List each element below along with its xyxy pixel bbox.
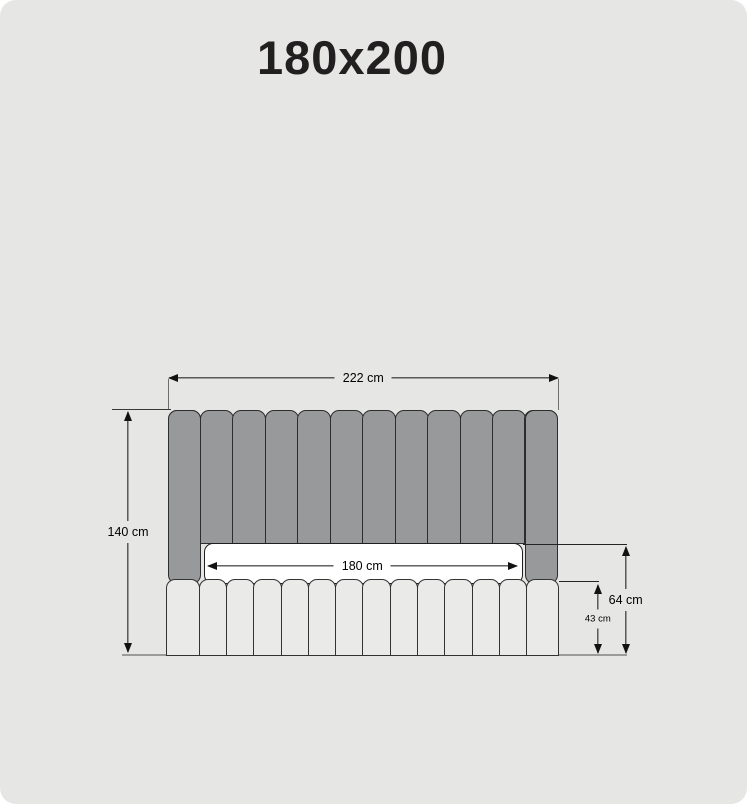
base-slat bbox=[417, 579, 446, 656]
dimension-label: 180 cm bbox=[334, 559, 391, 573]
dimension-height-total: 140 cm bbox=[123, 411, 133, 653]
arrowhead-down-icon bbox=[124, 643, 132, 653]
arrowhead-right-icon bbox=[508, 562, 518, 570]
arrowhead-up-icon bbox=[622, 546, 630, 556]
headboard-slat bbox=[492, 410, 526, 545]
base-slat bbox=[499, 579, 528, 656]
headboard-slat bbox=[232, 410, 266, 545]
arrowhead-right-icon bbox=[549, 374, 559, 382]
arrowhead-down-icon bbox=[594, 644, 602, 654]
headboard-slat bbox=[265, 410, 299, 545]
extension-line-width-right bbox=[558, 379, 559, 410]
base-slat bbox=[199, 579, 228, 656]
dimension-label: 43 cm bbox=[583, 609, 613, 628]
dimension-label: 222 cm bbox=[335, 371, 392, 385]
dimension-width-total: 222 cm bbox=[168, 373, 559, 383]
extension-line-height-top bbox=[112, 409, 171, 410]
dimension-label: 64 cm bbox=[607, 589, 645, 611]
extension-line-back-top bbox=[523, 544, 627, 545]
dimension-label: 140 cm bbox=[106, 521, 151, 543]
bed-dimension-diagram: 222 cm 180 cm 140 cm 64 cm 43 cm bbox=[0, 0, 747, 804]
base-slat bbox=[335, 579, 364, 656]
headboard-slat bbox=[330, 410, 364, 545]
base-slat bbox=[308, 579, 337, 656]
base-slat bbox=[226, 579, 255, 656]
headboard-slat bbox=[200, 410, 234, 545]
product-card: 180x200 222 cm 180 cm bbox=[0, 0, 747, 804]
headboard-slat bbox=[395, 410, 429, 545]
dimension-height-back: 64 cm bbox=[621, 546, 631, 654]
headboard-slat bbox=[460, 410, 494, 545]
base-slat bbox=[390, 579, 419, 656]
headboard-slat bbox=[362, 410, 396, 545]
arrowhead-up-icon bbox=[124, 411, 132, 421]
base-slats bbox=[166, 579, 559, 656]
arrowhead-left-icon bbox=[168, 374, 178, 382]
base-slat bbox=[444, 579, 473, 656]
base-slat bbox=[362, 579, 391, 656]
arrowhead-up-icon bbox=[594, 584, 602, 594]
headboard-slat bbox=[297, 410, 331, 545]
headboard-slat bbox=[427, 410, 461, 545]
headboard-wing-right bbox=[525, 410, 558, 584]
dimension-height-base: 43 cm bbox=[593, 584, 603, 654]
arrowhead-left-icon bbox=[207, 562, 217, 570]
dimension-width-mattress: 180 cm bbox=[207, 561, 518, 571]
base-slat bbox=[281, 579, 310, 656]
base-slat bbox=[253, 579, 282, 656]
headboard-slats bbox=[168, 410, 559, 545]
base-slat bbox=[526, 579, 559, 656]
base-slat bbox=[166, 579, 200, 656]
extension-line-base-top bbox=[559, 581, 599, 582]
base-slat bbox=[472, 579, 501, 656]
arrowhead-down-icon bbox=[622, 644, 630, 654]
extension-line-width-left bbox=[168, 379, 169, 410]
headboard-wing-left bbox=[168, 410, 201, 584]
